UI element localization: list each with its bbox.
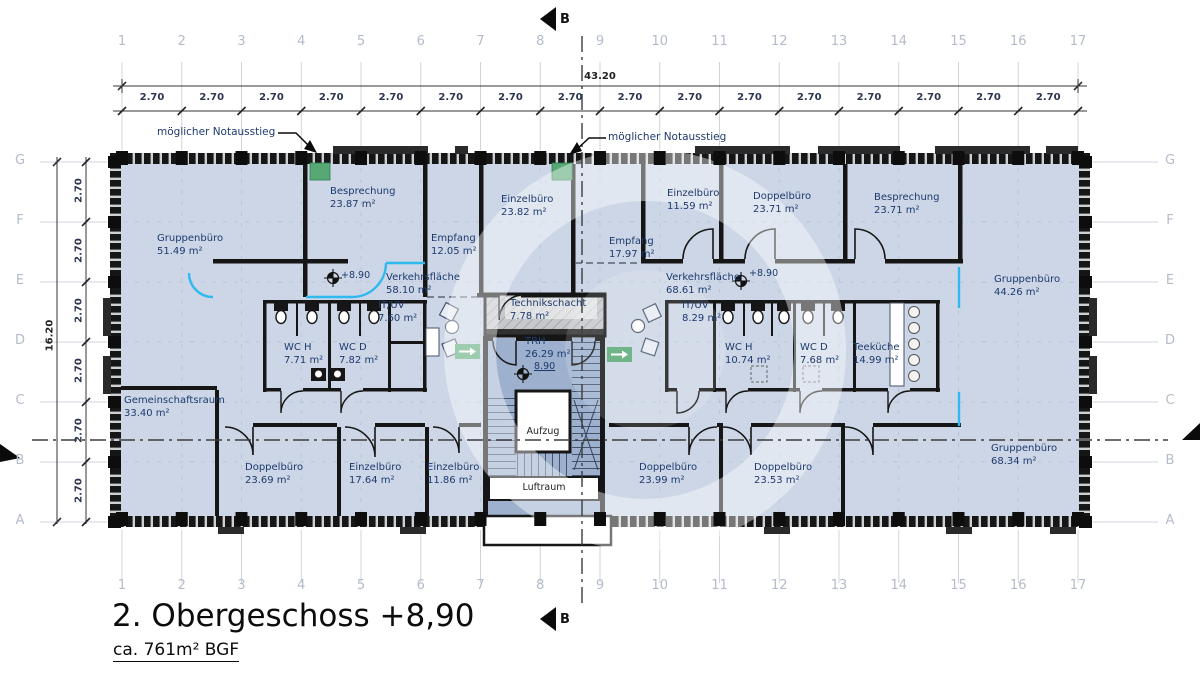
section-arrow-icon: [540, 607, 556, 631]
room-label: Einzelbüro11.86 m²: [427, 462, 479, 488]
room-label: Besprechung23.87 m²: [330, 186, 395, 212]
bay-dimension-vertical: 2.70: [74, 294, 85, 328]
room-label: Gruppenbüro44.26 m²: [994, 274, 1060, 300]
grid-column-number: 1: [110, 578, 134, 593]
room-area: 23.53 m²: [754, 475, 812, 488]
grid-row-letter: D: [8, 333, 32, 348]
room-area: 14.99 m²: [853, 355, 900, 368]
room-label: WC H7.71 m²: [284, 342, 323, 368]
room-name: Gemeinschaftsraum: [124, 395, 225, 408]
grid-column-number: 9: [588, 578, 612, 593]
floorplan-page: B B 43.20 16.20 möglicher Notausstieg mö…: [0, 0, 1200, 675]
room-label: Einzelbüro17.64 m²: [349, 462, 401, 488]
grid-row-letter: G: [8, 153, 32, 168]
bay-dimension-vertical: 2.70: [74, 174, 85, 208]
room-label: WC D7.68 m²: [800, 342, 839, 368]
room-label: Teeküche14.99 m²: [853, 342, 900, 368]
grid-column-number: 17: [1066, 34, 1090, 49]
bay-dimension: 2.70: [670, 92, 710, 103]
room-area: 11.59 m²: [667, 201, 719, 214]
room-name: Verkehrsfläche: [666, 272, 740, 285]
grid-row-letter: G: [1158, 153, 1182, 168]
room-name: Einzelbüro: [667, 188, 719, 201]
grid-column-number: 6: [409, 34, 433, 49]
grid-column-number: 9: [588, 34, 612, 49]
grid-column-number: 10: [648, 34, 672, 49]
bay-dimension-vertical: 2.70: [74, 354, 85, 388]
section-marker-b-top: B: [540, 7, 570, 31]
exit-note-arrows: [278, 133, 606, 155]
bay-dimension: 2.70: [789, 92, 829, 103]
room-area: 58.10 m²: [386, 285, 460, 298]
room-name: Technikschacht: [510, 298, 586, 311]
grid-row-letter: C: [1158, 393, 1182, 408]
room-area: 7.71 m²: [284, 355, 323, 368]
room-label: Gemeinschaftsraum33.40 m²: [124, 395, 225, 421]
grid-row-letter: C: [8, 393, 32, 408]
room-label: WC D7.82 m²: [339, 342, 378, 368]
grid-column-number: 8: [528, 34, 552, 49]
grid-row-letter: E: [8, 273, 32, 288]
bay-dimension-vertical: 2.70: [74, 474, 85, 508]
exit-note-right: möglicher Notausstieg: [608, 131, 726, 143]
bay-dimension: 2.70: [969, 92, 1009, 103]
room-name: Teeküche: [853, 342, 900, 355]
grid-row-letter: A: [8, 513, 32, 528]
bay-dimension: 2.70: [132, 92, 172, 103]
grid-column-number: 5: [349, 34, 373, 49]
section-a-arrow-right: [1182, 423, 1200, 440]
room-label: Doppelbüro23.69 m²: [245, 462, 303, 488]
grid-column-number: 16: [1006, 578, 1030, 593]
room-name: Einzelbüro: [427, 462, 479, 475]
room-area: 23.87 m²: [330, 199, 395, 212]
floor-plan-linework: [0, 0, 1200, 675]
section-letter: B: [560, 612, 570, 627]
room-name: Gruppenbüro: [994, 274, 1060, 287]
room-label: Besprechung23.71 m²: [874, 192, 939, 218]
grid-column-number: 14: [887, 34, 911, 49]
room-name: Empfang: [609, 236, 655, 249]
grid-column-number: 17: [1066, 578, 1090, 593]
room-area: 7.82 m²: [339, 355, 378, 368]
room-area: 7.68 m²: [800, 355, 839, 368]
grid-row-letter: A: [1158, 513, 1182, 528]
grid-column-number: 12: [767, 34, 791, 49]
room-name: Doppelbüro: [754, 462, 812, 475]
bay-dimension: 2.70: [371, 92, 411, 103]
bay-dimension-vertical: 2.70: [74, 414, 85, 448]
room-label: Empfang17.97 m²: [609, 236, 655, 262]
room-name: Empfang: [431, 233, 477, 246]
room-name: Besprechung: [330, 186, 395, 199]
grid-row-letter: D: [1158, 333, 1182, 348]
grid-column-number: 15: [947, 578, 971, 593]
room-label: Doppelbüro23.71 m²: [753, 191, 811, 217]
exit-square-left: [310, 163, 330, 180]
grid-column-number: 2: [170, 578, 194, 593]
room-area: 23.71 m²: [753, 204, 811, 217]
bay-dimension-vertical: 2.70: [74, 234, 85, 268]
level-marker-label: 8.90: [534, 361, 555, 372]
void-label: Luftraum: [489, 482, 599, 493]
bay-dimension: 2.70: [610, 92, 650, 103]
grid-column-number: 15: [947, 34, 971, 49]
room-name: Einzelbüro: [349, 462, 401, 475]
grid-column-number: 13: [827, 34, 851, 49]
room-area: 68.61 m²: [666, 285, 740, 298]
room-label: Verkehrsfläche58.10 m²: [386, 272, 460, 298]
room-label: IT/UV7.60 m²: [378, 300, 417, 326]
room-area: 23.82 m²: [501, 207, 553, 220]
room-name: IT/UV: [378, 300, 417, 313]
room-name: Einzelbüro: [501, 194, 553, 207]
elevator-label: Aufzug: [516, 426, 570, 437]
bay-dimension: 2.70: [730, 92, 770, 103]
room-label: IT/UV8.29 m²: [682, 300, 721, 326]
grid-column-number: 11: [708, 578, 732, 593]
room-area: 12.05 m²: [431, 246, 477, 259]
grid-column-number: 1: [110, 34, 134, 49]
room-name: WC H: [284, 342, 323, 355]
room-area: 33.40 m²: [124, 408, 225, 421]
bay-dimension: 2.70: [311, 92, 351, 103]
room-name: Besprechung: [874, 192, 939, 205]
room-label: Einzelbüro11.59 m²: [667, 188, 719, 214]
room-name: IT/UV: [682, 300, 721, 313]
grid-column-number: 13: [827, 578, 851, 593]
grid-column-number: 6: [409, 578, 433, 593]
grid-column-number: 5: [349, 578, 373, 593]
room-label: Gruppenbüro51.49 m²: [157, 233, 223, 259]
room-area: 68.34 m²: [991, 456, 1057, 469]
grid-column-number: 7: [469, 34, 493, 49]
room-label: Empfang12.05 m²: [431, 233, 477, 259]
room-label: Doppelbüro23.99 m²: [639, 462, 697, 488]
room-area: 26.29 m²: [525, 349, 571, 362]
grid-column-number: 3: [230, 578, 254, 593]
room-label: Doppelbüro23.53 m²: [754, 462, 812, 488]
room-label: TRH26.29 m²: [525, 336, 571, 362]
total-height-dim: 16.20: [45, 314, 56, 358]
room-name: Doppelbüro: [639, 462, 697, 475]
room-name: Verkehrsfläche: [386, 272, 460, 285]
room-area: 23.71 m²: [874, 205, 939, 218]
bay-dimension: 2.70: [431, 92, 471, 103]
grid-row-letter: B: [1158, 453, 1182, 468]
room-name: Gruppenbüro: [991, 443, 1057, 456]
grid-column-number: 16: [1006, 34, 1030, 49]
room-area: 7.60 m²: [378, 313, 417, 326]
exit-note-left: möglicher Notausstieg: [157, 126, 275, 138]
room-name: WC H: [725, 342, 771, 355]
room-name: Gruppenbüro: [157, 233, 223, 246]
room-area: 7.78 m²: [510, 311, 586, 324]
grid-row-letter: F: [1158, 213, 1182, 228]
grid-column-number: 4: [289, 578, 313, 593]
section-marker-b-bottom: B: [540, 607, 570, 631]
grid-column-number: 2: [170, 34, 194, 49]
bay-dimension: 2.70: [1028, 92, 1068, 103]
room-area: 17.97 m²: [609, 249, 655, 262]
bay-dimension: 2.70: [252, 92, 292, 103]
room-label: Technikschacht7.78 m²: [510, 298, 586, 324]
grid-column-number: 10: [648, 578, 672, 593]
bay-dimension: 2.70: [491, 92, 531, 103]
level-marker-label: +8.90: [749, 268, 778, 279]
room-label: Einzelbüro23.82 m²: [501, 194, 553, 220]
section-arrow-icon: [540, 7, 556, 31]
room-label: WC H10.74 m²: [725, 342, 771, 368]
bay-dimension: 2.70: [909, 92, 949, 103]
grid-row-letter: E: [1158, 273, 1182, 288]
room-name: Doppelbüro: [245, 462, 303, 475]
drawing-subtitle: ca. 761m² BGF: [113, 640, 239, 662]
bay-dimension: 2.70: [550, 92, 590, 103]
grid-column-number: 7: [469, 578, 493, 593]
room-area: 23.69 m²: [245, 475, 303, 488]
grid-column-number: 12: [767, 578, 791, 593]
grid-column-number: 11: [708, 34, 732, 49]
room-label: Gruppenbüro68.34 m²: [991, 443, 1057, 469]
room-name: Doppelbüro: [753, 191, 811, 204]
grid-column-number: 4: [289, 34, 313, 49]
level-marker-label: +8.90: [341, 270, 370, 281]
drawing-title: 2. Obergeschoss +8,90: [112, 598, 475, 634]
bay-dimension: 2.70: [192, 92, 232, 103]
grid-row-letter: F: [8, 213, 32, 228]
bay-dimension: 2.70: [849, 92, 889, 103]
room-name: WC D: [339, 342, 378, 355]
total-width-dim: 43.20: [570, 71, 630, 82]
grid-column-number: 8: [528, 578, 552, 593]
room-name: TRH: [525, 336, 571, 349]
room-area: 11.86 m²: [427, 475, 479, 488]
section-letter: B: [560, 12, 570, 27]
grid-row-letter: B: [8, 453, 32, 468]
room-area: 51.49 m²: [157, 246, 223, 259]
room-area: 23.99 m²: [639, 475, 697, 488]
room-area: 44.26 m²: [994, 287, 1060, 300]
grid-column-number: 14: [887, 578, 911, 593]
room-name: WC D: [800, 342, 839, 355]
room-label: Verkehrsfläche68.61 m²: [666, 272, 740, 298]
grid-column-number: 3: [230, 34, 254, 49]
room-area: 8.29 m²: [682, 313, 721, 326]
room-area: 17.64 m²: [349, 475, 401, 488]
room-area: 10.74 m²: [725, 355, 771, 368]
